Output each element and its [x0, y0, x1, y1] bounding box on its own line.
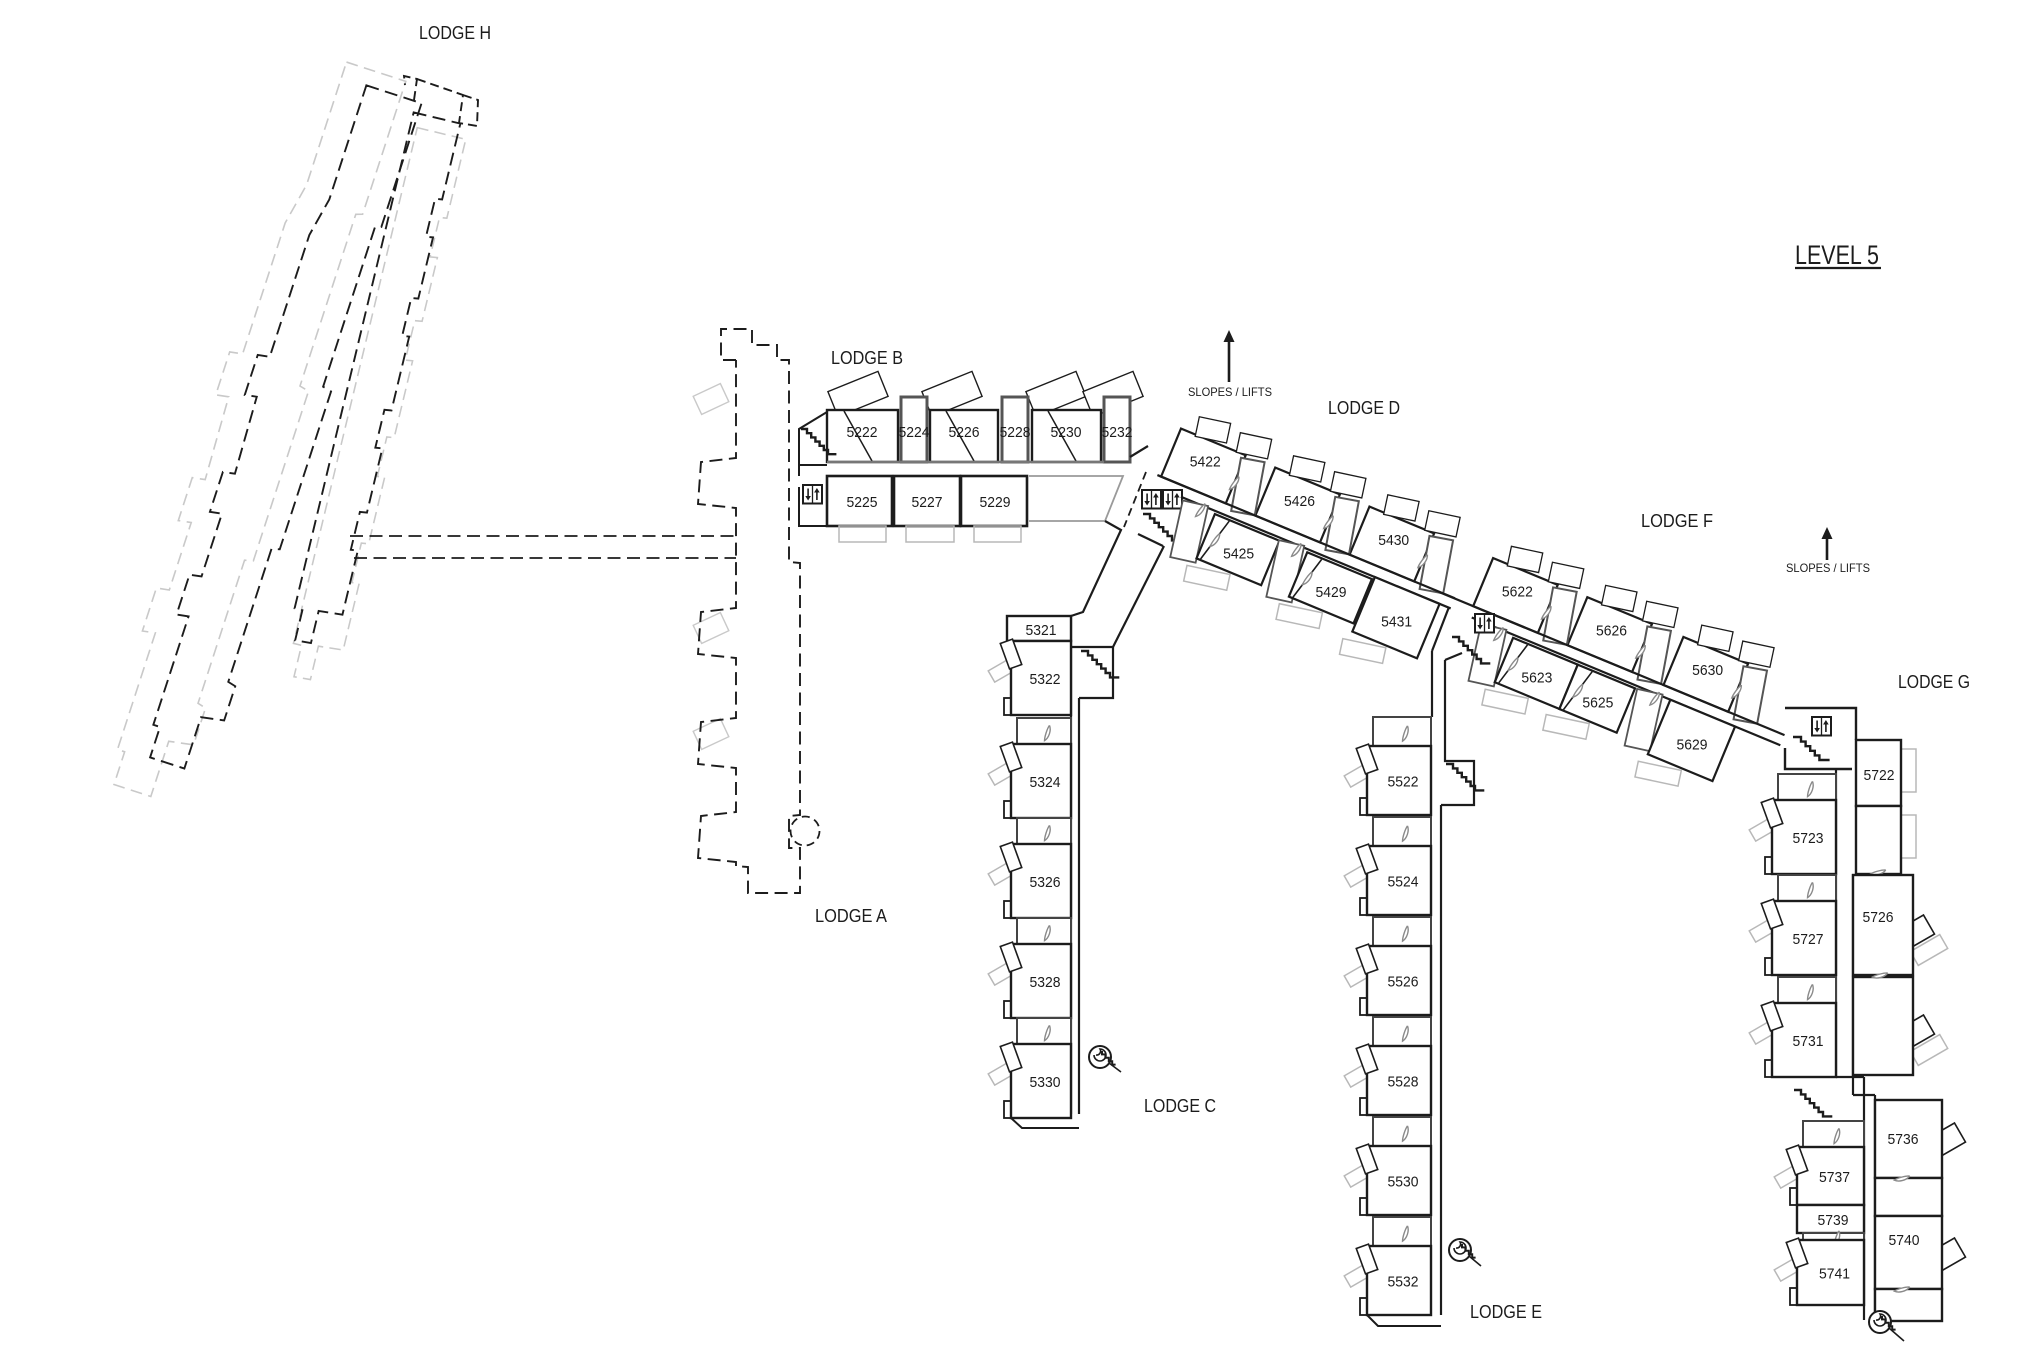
- svg-text:5737: 5737: [1819, 1169, 1850, 1186]
- svg-text:LODGE H: LODGE H: [419, 23, 491, 43]
- svg-text:5740: 5740: [1889, 1232, 1920, 1249]
- svg-text:5229: 5229: [980, 494, 1011, 511]
- svg-text:LODGE C: LODGE C: [1144, 1096, 1216, 1116]
- svg-text:5630: 5630: [1692, 662, 1723, 679]
- svg-text:SLOPES / LIFTS: SLOPES / LIFTS: [1188, 385, 1272, 399]
- svg-text:SLOPES / LIFTS: SLOPES / LIFTS: [1786, 561, 1870, 575]
- svg-text:5330: 5330: [1030, 1074, 1061, 1091]
- svg-text:5328: 5328: [1030, 974, 1061, 991]
- svg-text:5625: 5625: [1582, 695, 1613, 712]
- svg-text:5324: 5324: [1030, 774, 1061, 791]
- svg-text:5326: 5326: [1030, 874, 1061, 891]
- svg-text:5524: 5524: [1388, 874, 1419, 891]
- svg-text:5522: 5522: [1388, 774, 1419, 791]
- svg-text:5739: 5739: [1818, 1212, 1849, 1229]
- svg-text:5425: 5425: [1223, 546, 1254, 563]
- svg-text:5629: 5629: [1677, 736, 1708, 753]
- svg-text:5731: 5731: [1793, 1033, 1824, 1050]
- svg-text:5727: 5727: [1793, 931, 1824, 948]
- svg-text:5227: 5227: [912, 494, 943, 511]
- svg-text:5722: 5722: [1864, 767, 1895, 784]
- svg-text:LODGE D: LODGE D: [1328, 398, 1400, 418]
- svg-text:5224: 5224: [899, 424, 930, 441]
- svg-text:5431: 5431: [1381, 614, 1412, 631]
- svg-text:5526: 5526: [1388, 974, 1419, 991]
- svg-text:5726: 5726: [1863, 909, 1894, 926]
- svg-text:5321: 5321: [1026, 622, 1057, 639]
- svg-text:LODGE B: LODGE B: [831, 348, 903, 368]
- svg-text:5623: 5623: [1521, 669, 1552, 686]
- svg-text:5530: 5530: [1388, 1174, 1419, 1191]
- svg-text:LEVEL 5: LEVEL 5: [1795, 240, 1879, 270]
- svg-text:5736: 5736: [1888, 1131, 1919, 1148]
- svg-text:5222: 5222: [847, 424, 878, 441]
- svg-text:5230: 5230: [1051, 424, 1082, 441]
- svg-text:5528: 5528: [1388, 1074, 1419, 1091]
- svg-text:5226: 5226: [949, 424, 980, 441]
- svg-text:5225: 5225: [847, 494, 878, 511]
- svg-text:5426: 5426: [1284, 493, 1315, 510]
- svg-text:LODGE G: LODGE G: [1898, 672, 1970, 692]
- svg-text:5232: 5232: [1102, 424, 1133, 441]
- svg-text:LODGE A: LODGE A: [815, 906, 887, 926]
- svg-text:5429: 5429: [1316, 584, 1347, 601]
- svg-text:5741: 5741: [1819, 1266, 1850, 1283]
- svg-text:5422: 5422: [1190, 454, 1221, 471]
- svg-text:LODGE E: LODGE E: [1470, 1302, 1542, 1322]
- svg-text:5430: 5430: [1378, 532, 1409, 549]
- svg-text:5622: 5622: [1502, 583, 1533, 600]
- svg-text:5626: 5626: [1596, 622, 1627, 639]
- svg-text:5228: 5228: [1000, 424, 1031, 441]
- svg-text:5532: 5532: [1388, 1274, 1419, 1291]
- svg-text:LODGE F: LODGE F: [1641, 511, 1713, 531]
- svg-text:5723: 5723: [1793, 830, 1824, 847]
- svg-text:5322: 5322: [1030, 671, 1061, 688]
